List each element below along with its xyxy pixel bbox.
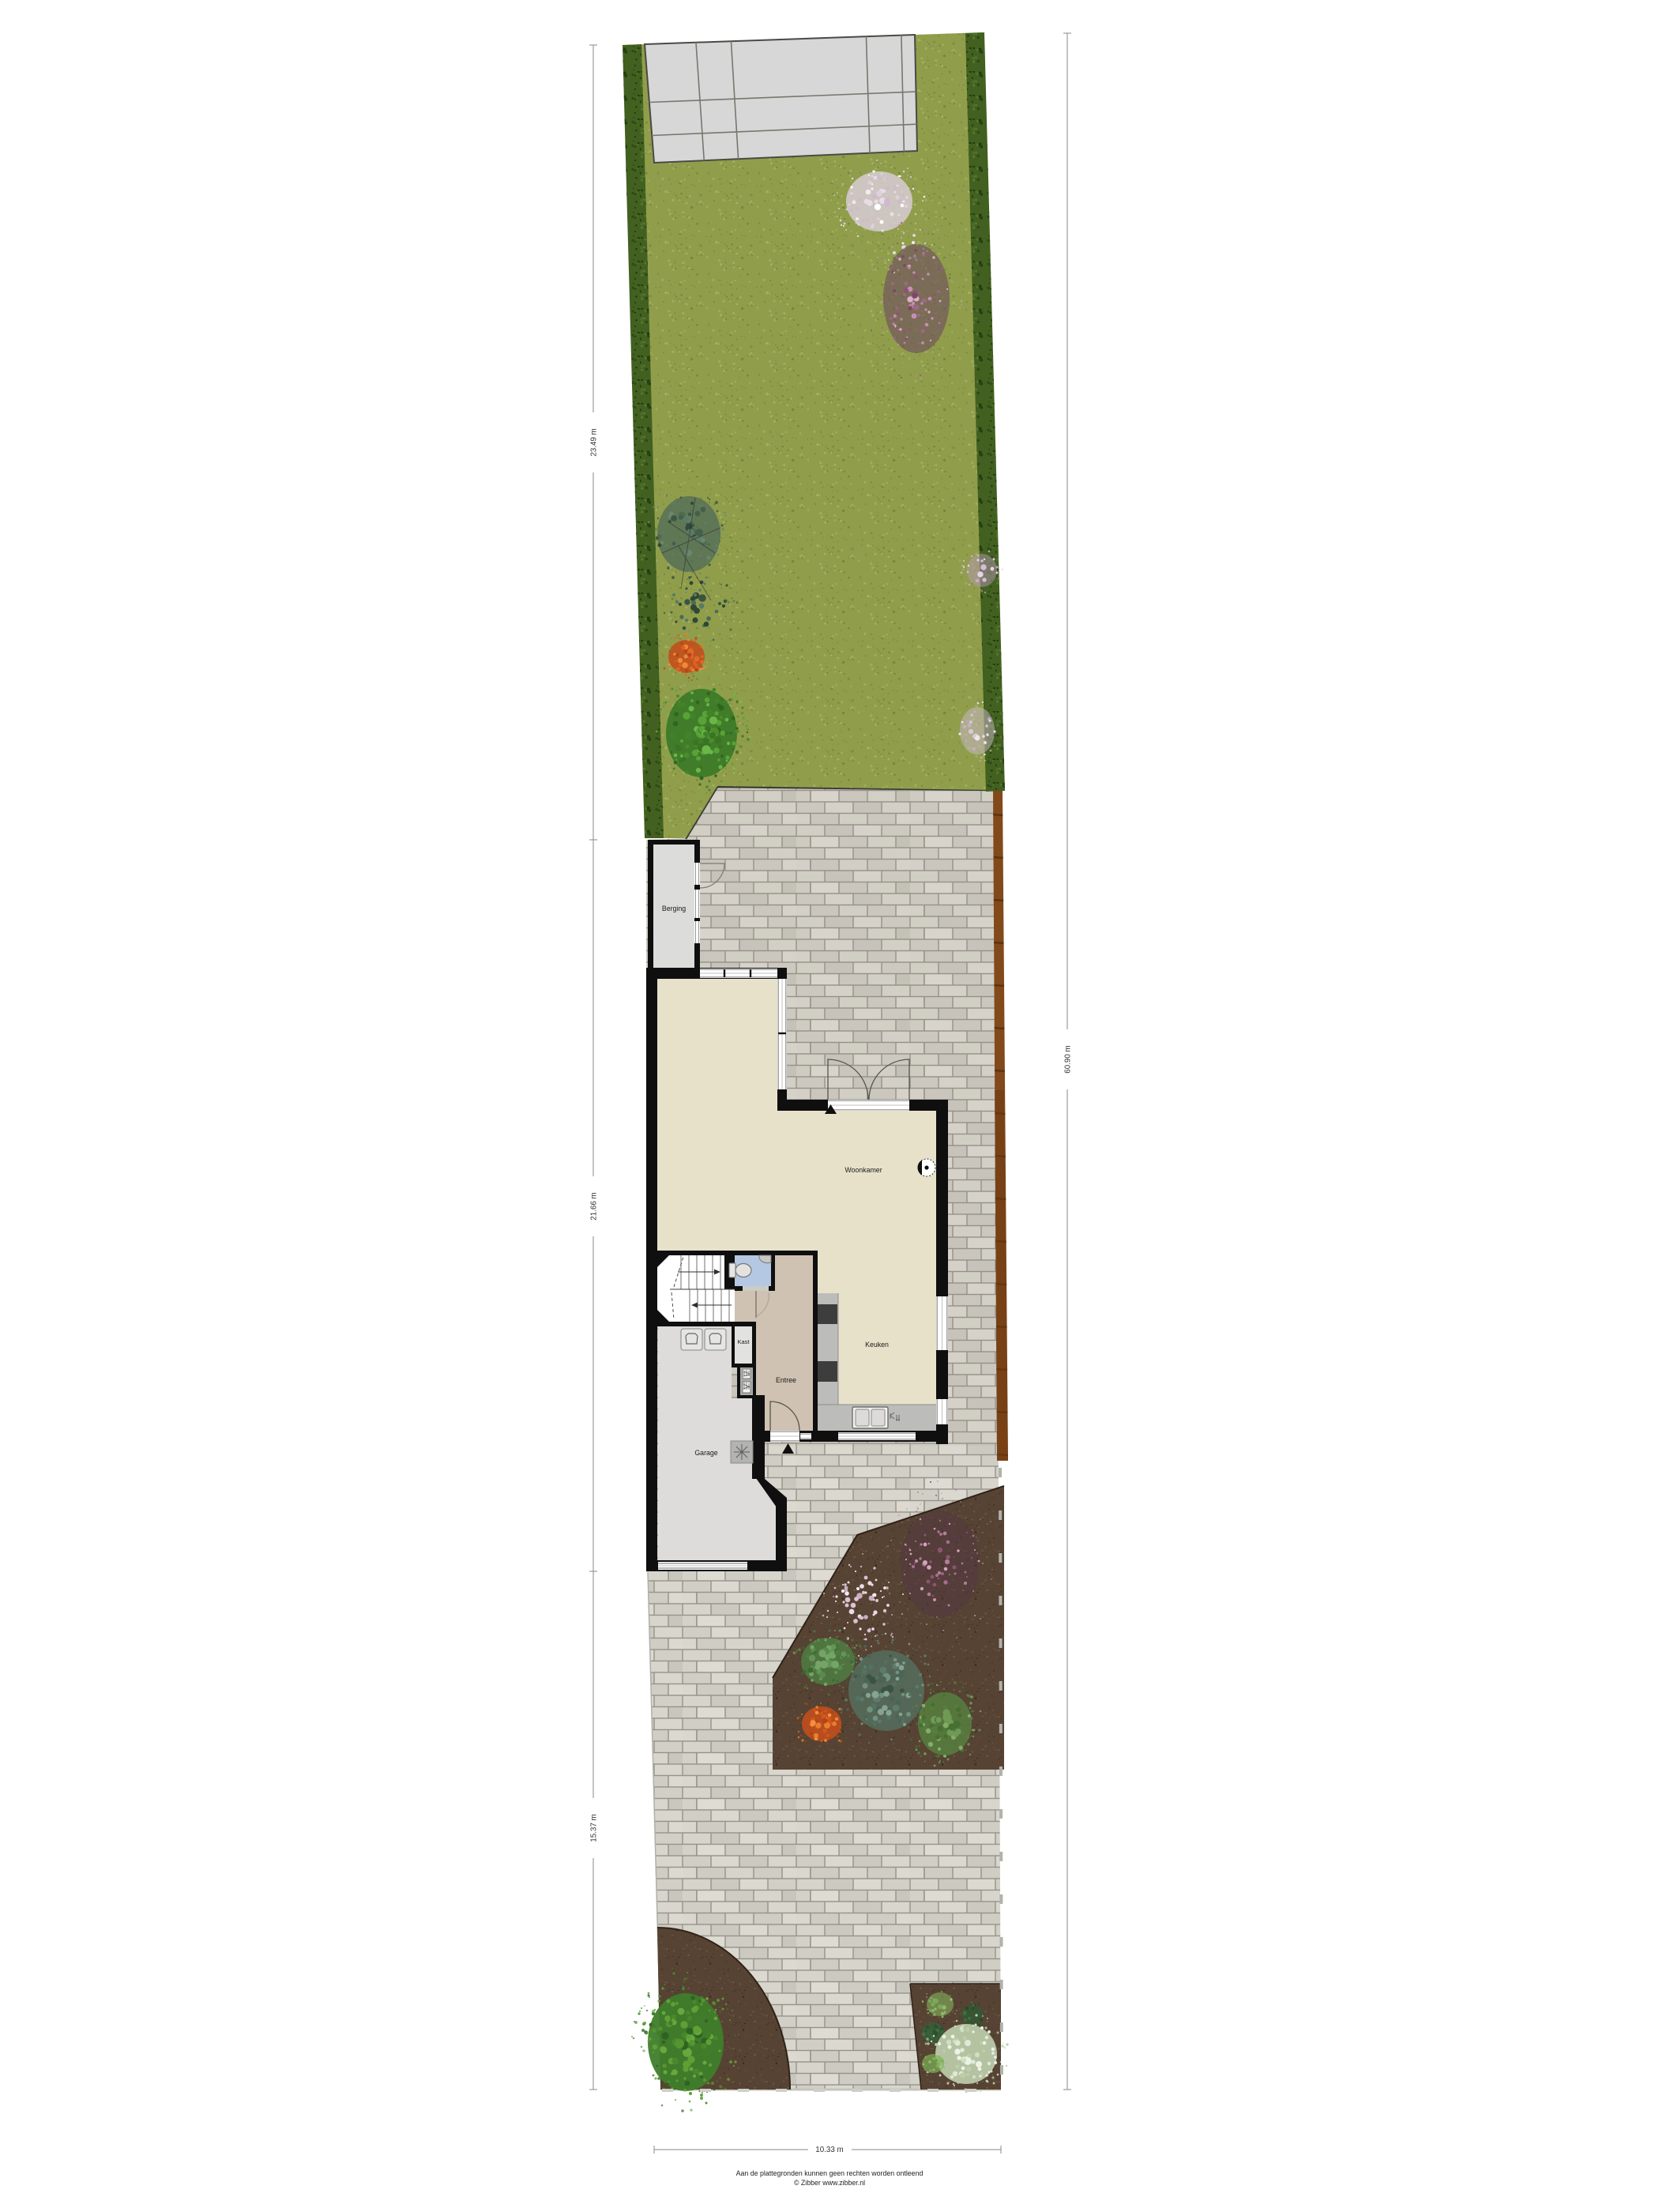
- svg-text:10.33 m: 10.33 m: [815, 2146, 843, 2154]
- svg-text:© Zibber www.zibber.nl: © Zibber www.zibber.nl: [794, 2179, 865, 2187]
- svg-text:Entree: Entree: [776, 1376, 796, 1384]
- svg-text:23.49 m: 23.49 m: [590, 428, 599, 456]
- svg-text:15.37 m: 15.37 m: [590, 1814, 599, 1841]
- svg-text:Kast: Kast: [737, 1338, 750, 1345]
- svg-text:Berging: Berging: [662, 905, 686, 912]
- svg-text:Garage: Garage: [694, 1449, 717, 1457]
- svg-text:Woonkamer: Woonkamer: [845, 1166, 882, 1174]
- svg-text:Aan de plattegronden kunnen ge: Aan de plattegronden kunnen geen rechten…: [736, 2169, 924, 2177]
- svg-text:21.66 m: 21.66 m: [590, 1192, 599, 1220]
- svg-text:60.90 m: 60.90 m: [1064, 1045, 1073, 1073]
- svg-text:Keuken: Keuken: [865, 1341, 889, 1349]
